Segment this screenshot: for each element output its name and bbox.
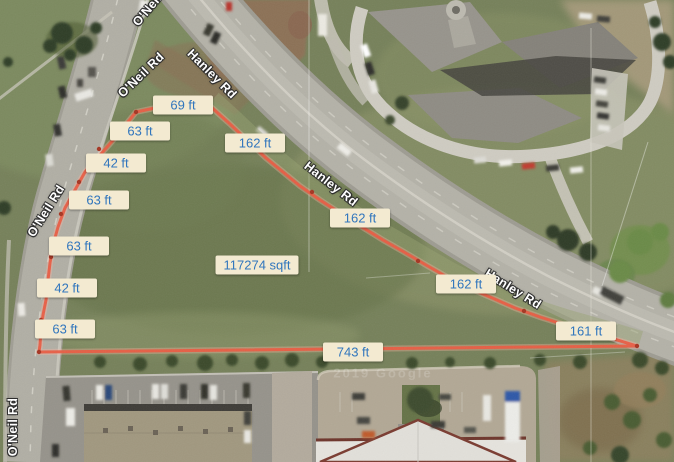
distance-label: 63 ft xyxy=(110,122,170,141)
area-label: 117274 sqft xyxy=(216,256,299,275)
road-label: O'Neil Rd xyxy=(6,398,20,456)
road-label: Hanley Rd xyxy=(184,46,239,101)
distance-label: 162 ft xyxy=(436,275,496,294)
distance-label: 162 ft xyxy=(225,134,285,153)
map-watermark: 2019 Google xyxy=(333,366,432,381)
distance-label: 161 ft xyxy=(556,322,616,341)
road-label: Hanley Rd xyxy=(302,159,361,209)
distance-label: 42 ft xyxy=(37,279,97,298)
distance-label: 63 ft xyxy=(69,191,129,210)
road-label: O'Neil Rd xyxy=(130,0,178,29)
distance-label: 63 ft xyxy=(35,320,95,339)
road-label: O'Neil Rd xyxy=(25,182,68,239)
distance-label: 63 ft xyxy=(49,237,109,256)
distance-label: 162 ft xyxy=(330,209,390,228)
distance-label: 743 ft xyxy=(323,343,383,362)
distance-label: 69 ft xyxy=(153,96,213,115)
road-label: O'Neil Rd xyxy=(115,50,167,101)
distance-label: 42 ft xyxy=(86,154,146,173)
measurement-overlay: O'Neil RdHanley RdO'Neil RdHanley RdHanl… xyxy=(0,0,674,462)
map-viewport[interactable]: O'Neil RdHanley RdO'Neil RdHanley RdHanl… xyxy=(0,0,674,462)
